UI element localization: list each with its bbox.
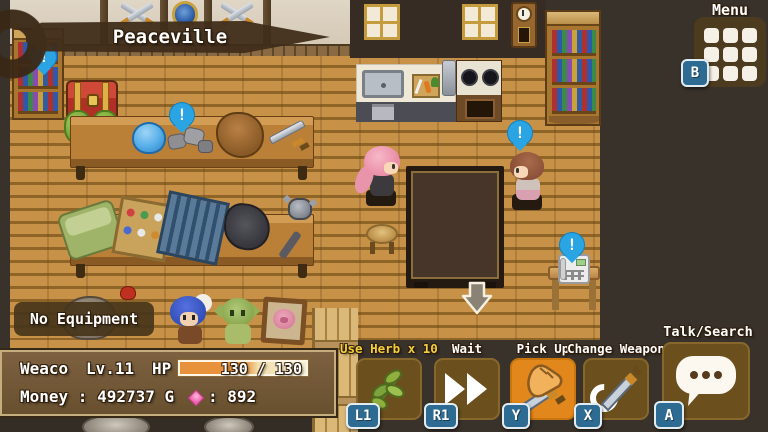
sword-item — [264, 112, 312, 156]
action-label-use-herb: Use Herb x 10 — [340, 341, 432, 356]
kitchen-sink — [362, 70, 404, 98]
npc-brown-hair[interactable] — [504, 152, 550, 216]
kitchen-pots — [442, 60, 456, 96]
fast-forward-icon — [443, 371, 491, 407]
character-level: Lv.11 — [86, 359, 134, 378]
cutting-board — [412, 74, 440, 98]
change-weapon-key-badge: X — [574, 403, 602, 429]
window — [364, 4, 400, 40]
equipment-status-text: No Equipment — [14, 310, 154, 328]
game-screen: ! ! ! ! Peaceville Menu B No Equipment W… — [0, 0, 768, 432]
bookshelf-right — [545, 10, 601, 126]
stove — [456, 60, 502, 122]
telephone-desk[interactable] — [548, 262, 600, 312]
alert-bubble: ! — [507, 120, 533, 152]
wait-key-badge: R1 — [424, 403, 458, 429]
player-character — [356, 146, 402, 212]
exclamation-icon: ! — [507, 123, 533, 142]
hp-bar: 130 / 130 — [178, 360, 308, 376]
stool — [366, 224, 398, 256]
table-leg — [298, 166, 307, 180]
alert-bubble: ! — [559, 232, 585, 264]
exclamation-icon: ! — [559, 235, 585, 254]
wall-clock — [511, 2, 537, 48]
speech-bubble-icon — [674, 352, 738, 410]
stats-panel: Weaco Lv.11 HP 130 / 130 Money : 492737 … — [0, 350, 336, 416]
menu-grid-icon — [704, 28, 757, 81]
towel — [372, 104, 394, 120]
goblin-doll — [216, 298, 260, 346]
window — [462, 4, 498, 40]
pick-up-key-badge: Y — [502, 403, 530, 429]
use-herb-key-badge: L1 — [346, 403, 380, 429]
location-name: Peaceville — [70, 26, 270, 48]
alert-bubble: ! — [169, 102, 195, 134]
blue-hair-doll — [168, 294, 212, 344]
slime-hat — [132, 122, 166, 154]
oven — [465, 99, 495, 119]
pink-gem-icon — [188, 390, 205, 407]
down-arrow-icon — [458, 280, 496, 316]
exclamation-icon: ! — [169, 105, 195, 124]
kitchen-counter — [356, 58, 502, 122]
equipment-status: No Equipment — [14, 302, 154, 336]
table-leg — [298, 264, 307, 278]
metal-rack — [156, 190, 230, 265]
action-label-talk-search: Talk/Search — [656, 324, 760, 340]
talk-search-key-badge: A — [654, 401, 684, 429]
hp-value: 130 / 130 — [221, 360, 302, 378]
gem-count: : 892 — [208, 387, 256, 406]
action-label-wait: Wait — [431, 341, 503, 356]
money-value: Money : 492737 G — [20, 387, 174, 406]
table-leg — [76, 166, 85, 180]
framed-picture — [260, 297, 307, 346]
fur-pelt — [216, 112, 264, 158]
mace — [258, 196, 318, 262]
action-label-change-weapon: Change Weapon — [566, 341, 666, 356]
table-leg — [76, 264, 85, 278]
red-bird — [120, 286, 136, 300]
hp-label: HP — [152, 359, 171, 378]
menu-key-badge: B — [681, 59, 709, 87]
clay-pot — [204, 416, 254, 432]
big-table — [406, 166, 504, 288]
character-name: Weaco — [20, 359, 68, 378]
